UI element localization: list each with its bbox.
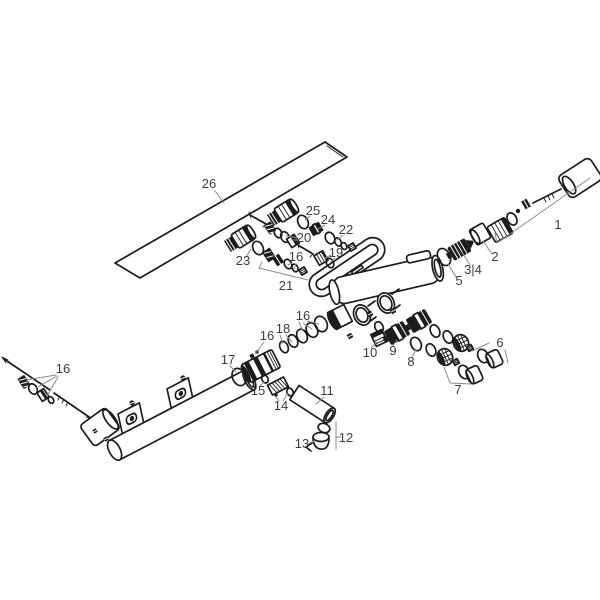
- thermostat-cartridge: [444, 235, 477, 263]
- screw-lower: [453, 359, 460, 366]
- leader-26: [215, 191, 224, 203]
- exploded-diagram: 26: [0, 0, 600, 600]
- part-label-25: 25: [306, 203, 320, 218]
- part-label-24: 24: [321, 212, 335, 227]
- part-label-15: 15: [251, 383, 265, 398]
- part-label-13: 13: [295, 436, 309, 451]
- part-label-19: 19: [329, 245, 343, 260]
- handle-adapter: [487, 217, 513, 243]
- mounting-rod: [2, 357, 92, 424]
- part-label-8: 8: [407, 354, 414, 369]
- handle-set-screw: [516, 209, 520, 213]
- exploded-parts-page: 26: [0, 0, 600, 600]
- part-label-10: 10: [363, 345, 377, 360]
- part-label-5: 5: [455, 273, 462, 288]
- part-label-21: 21: [279, 278, 293, 293]
- leader-16-diverter: [255, 342, 264, 354]
- part-label-17: 17: [221, 352, 235, 367]
- part-label-2: 2: [491, 249, 498, 264]
- rod-ring-small: [47, 396, 55, 405]
- set-screw: [347, 333, 354, 340]
- handle: [557, 157, 600, 200]
- screw-rod-upper: [249, 212, 266, 227]
- ring-16d-b: [291, 263, 299, 273]
- part-label-11: 11: [320, 383, 334, 398]
- filter-lower: [435, 346, 456, 368]
- part-label-6: 6: [496, 335, 503, 350]
- part-label-18: 18: [276, 321, 290, 336]
- part-label-26: 26: [202, 176, 216, 191]
- screw-14: [274, 393, 277, 396]
- part-label-3-4: 3|4: [464, 262, 482, 277]
- part-label-16-diverter: 16: [260, 328, 274, 343]
- part-label-9: 9: [389, 343, 396, 358]
- part-label-12: 12: [339, 430, 353, 445]
- body-inlet-stub: [325, 304, 352, 330]
- ring-upper: [428, 323, 442, 339]
- part-label-16-rod: 16: [56, 361, 70, 376]
- part-label-1: 1: [554, 217, 561, 232]
- part-label-20: 20: [297, 230, 311, 245]
- handle-clip: [521, 199, 531, 210]
- o-ring-dark-lower: [424, 342, 438, 358]
- part-label-14: 14: [274, 398, 288, 413]
- aerator-cup: [306, 433, 329, 452]
- spring-14: [267, 377, 288, 395]
- part-label-22: 22: [339, 222, 353, 237]
- part-label-16-top: 16: [289, 249, 303, 264]
- part-label-16-chain: 16: [296, 308, 310, 323]
- screw-21: [299, 267, 307, 275]
- part-label-23: 23: [236, 253, 250, 268]
- part-label-7: 7: [454, 382, 461, 397]
